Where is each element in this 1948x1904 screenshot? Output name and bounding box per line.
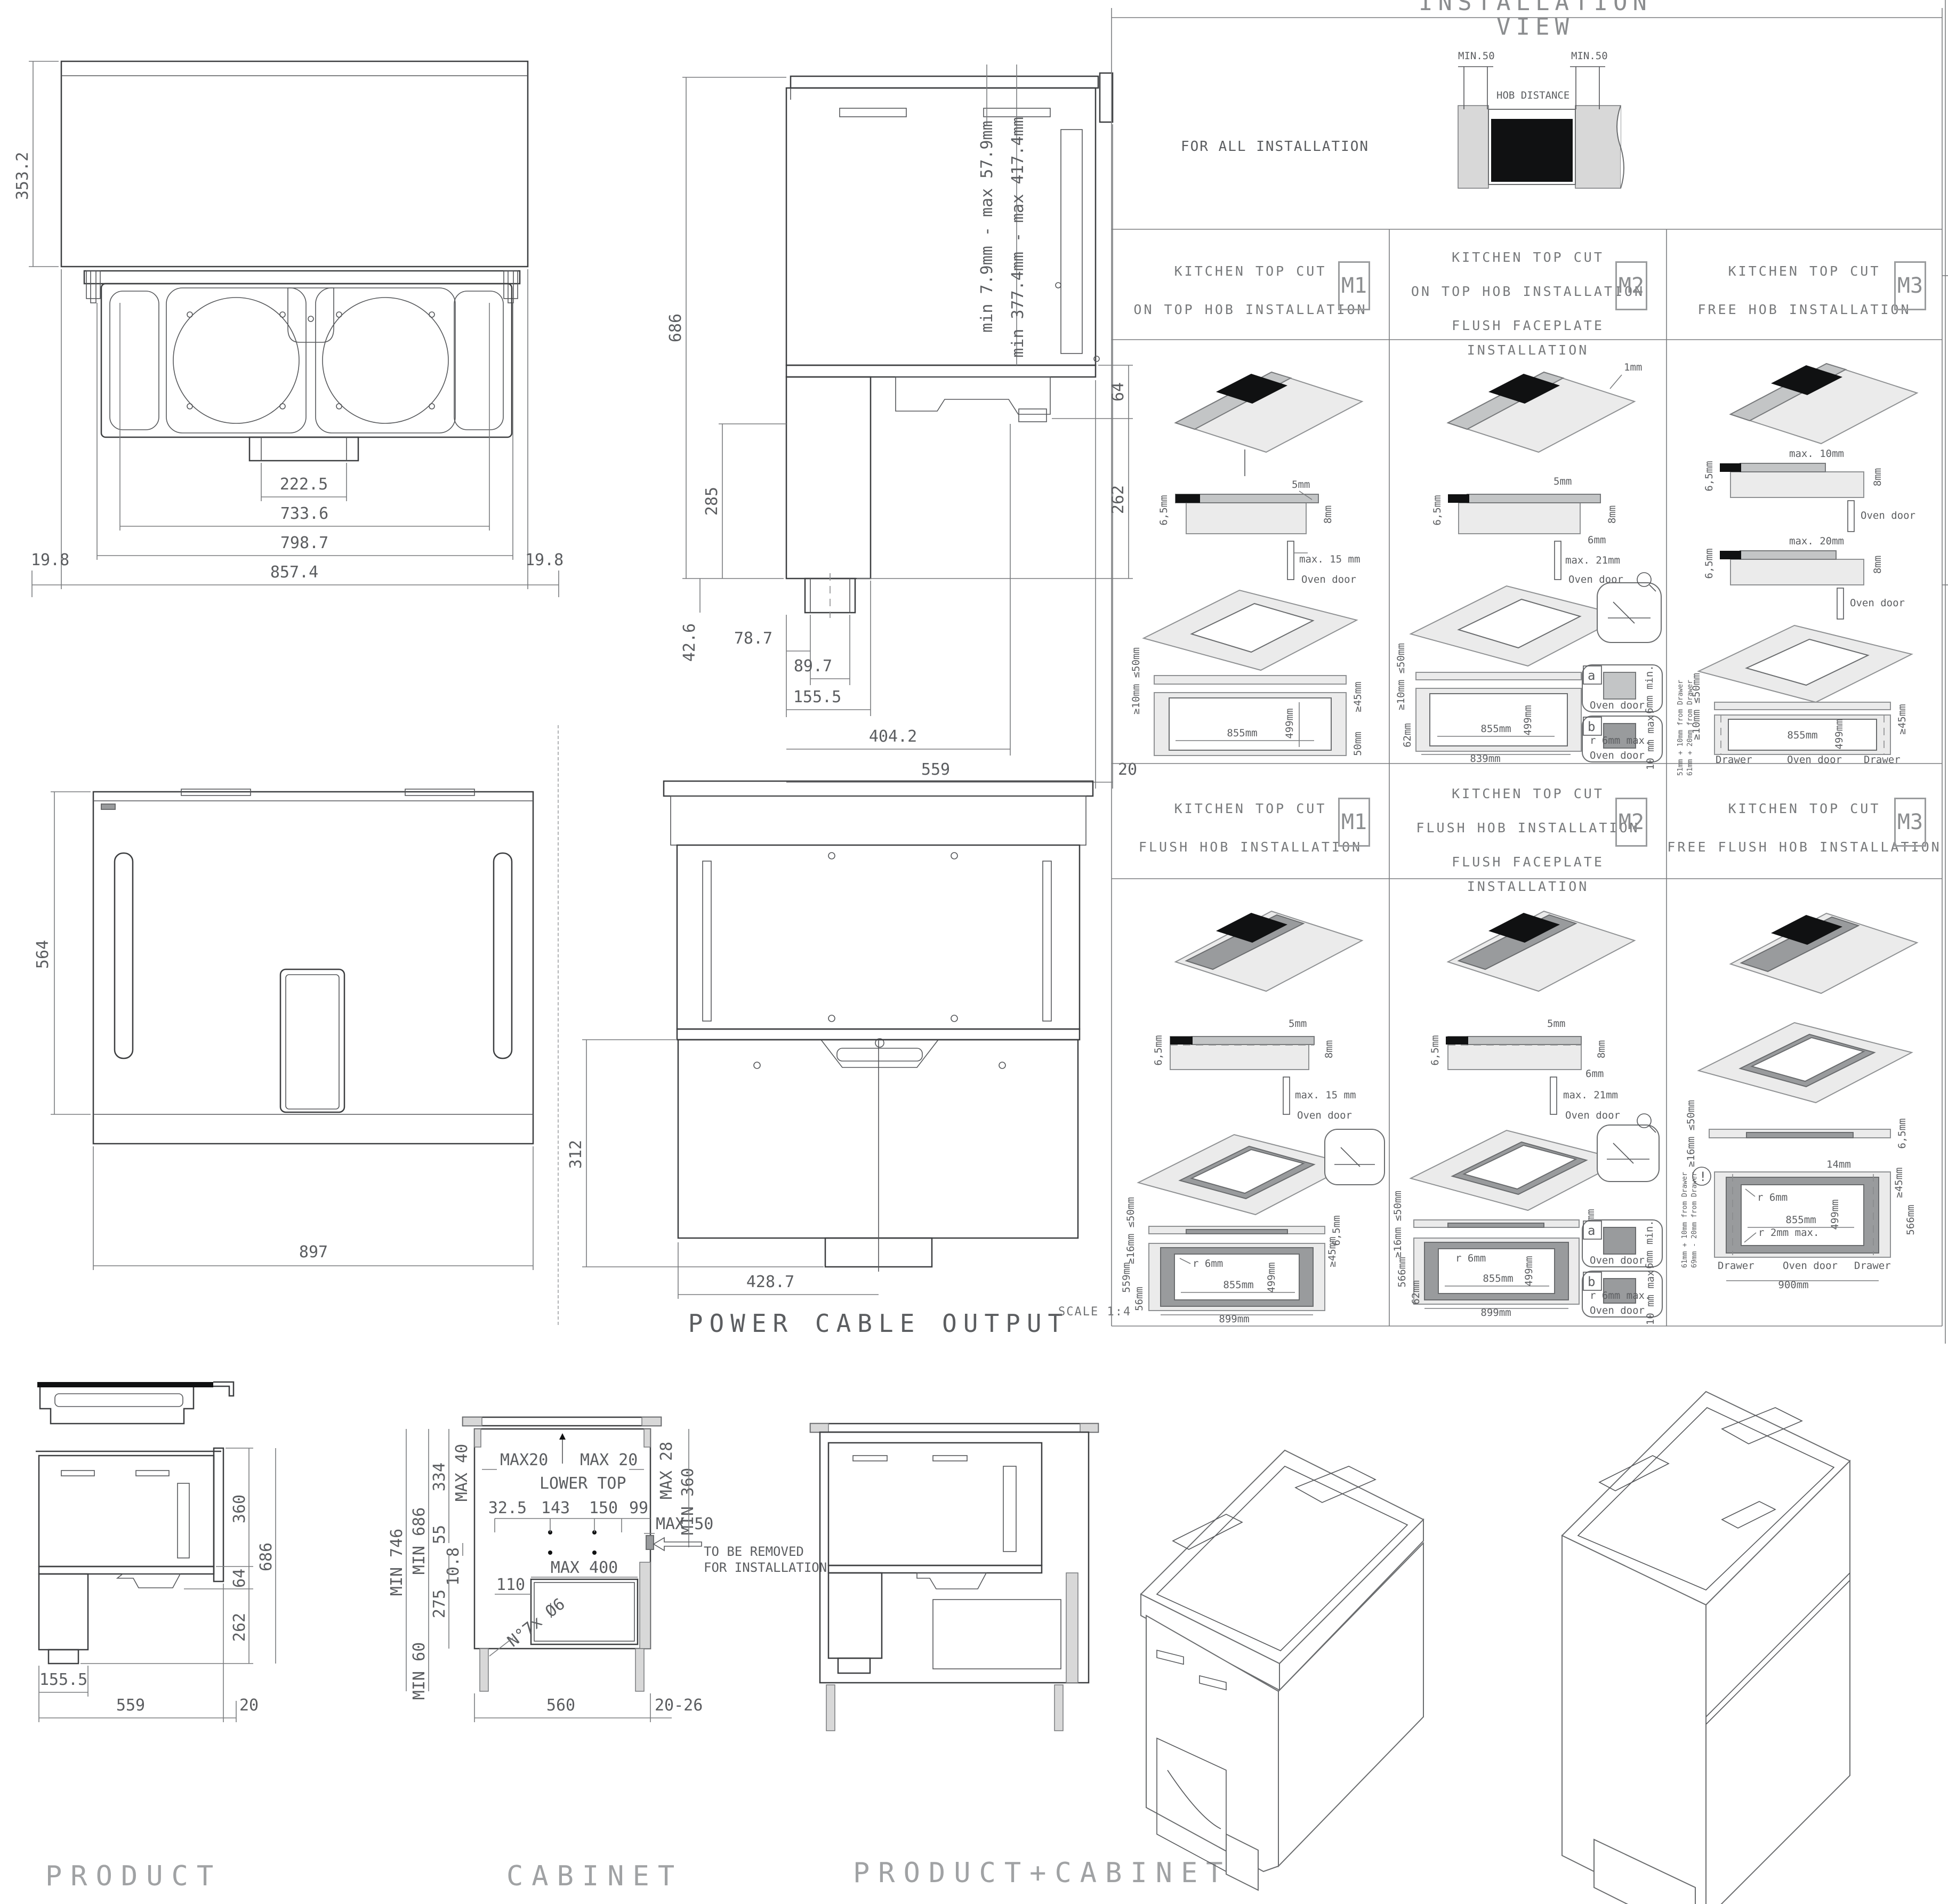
r2m2-plan-w: 855mm [1483,1273,1513,1284]
r1m2-callout-a: a 6mm min. Oven door [1582,665,1662,714]
r1m3-cs2-top: max. 20mm [1789,535,1844,547]
r2m3-warning: ! [1699,1169,1706,1184]
dim-product-lower: 262 [230,1613,249,1642]
dim-cab-min746: MIN 746 [388,1529,406,1596]
r2m2-cs-doorgap: max. 21mm [1563,1089,1618,1101]
r2m2-plan-rad: r 6mm [1455,1252,1486,1264]
r1m3-plan-n2: 61mm + 20mm from Drawer [1686,680,1694,776]
r2m1-iso-cutout [1138,1129,1384,1215]
iso-product-cabinet [1546,1344,1948,1903]
dim-cab-max400: MAX 400 [551,1558,618,1577]
dim-cab-108: 10.8 [444,1547,463,1586]
r1m3-cs2-door: Oven door [1850,597,1905,609]
r1m2-callout-a2: Oven door [1590,700,1645,711]
r1m1-plan-h: 499mm [1284,708,1295,738]
r1m2-iso: 1mm [1448,361,1642,452]
r2m2-plan: ≥16mm ≤50mm 6,5mm r 6mm 855mm 499mm ≥45m… [1392,1191,1597,1319]
dim-product-gap: 20 [239,1696,259,1715]
r2m2-callout-a-tag: a [1588,1223,1595,1238]
r2m3-plan: ! r 6mm r 2mm max. 855mm 499mm 14mm ≥45m… [1681,1159,1917,1291]
dim-cab-min686: MIN 686 [410,1507,429,1574]
r1m1-cs-door: Oven door [1301,574,1356,585]
r1m3-cross-section-2: 6,5mm max. 20mm 8mm Oven door [1703,535,1905,619]
r1m2-plan-h: 499mm [1522,705,1534,735]
r1m1-cross-section: 6,5mm 8mm 5mm max. 15 mm Oven door [1158,479,1360,585]
product-view: 360 64 262 686 155.5 559 20 PRODUCT [8,1349,291,1904]
r1m1-plan-w: 855mm [1227,727,1257,739]
r1m3-drawer-1: Drawer [1716,754,1752,766]
r2m2-plan-left: 62mm [1410,1280,1422,1305]
r1m2-callout-b1: r 6mm max. [1590,735,1651,746]
r2m1-code: M1 [1338,798,1370,847]
r1m2-plan-left: 62mm [1402,723,1413,748]
r1m1-cs-doorgap: max. 15 mm [1299,553,1360,565]
r2m2-callout-b3: Oven door [1590,1305,1645,1316]
r2m1-plan: ≥16mm ≤50mm 6,5mm r 6mm 855mm 499mm ≥45m… [1121,1197,1342,1325]
r1m1-iso-cutout [1144,590,1357,670]
r1m2-cs-bottom: 6mm [1588,534,1606,546]
r2m2-plan-h: 499mm [1523,1256,1535,1286]
cell-r1m1: 6,5mm 8mm 5mm max. 15 mm Oven door ≥10mm… [1112,340,1389,764]
r2m1-plan-thick: ≥16mm ≤50mm [1125,1197,1137,1264]
dim-cab-min60: MIN 60 [410,1642,429,1700]
r2m3-plan-gap: 14mm [1826,1159,1851,1170]
iso-cabinet-drawing [1562,1392,1850,1904]
header-r2m3: KITCHEN TOP CUT FREE FLUSH HOB INSTALLAT… [1667,764,1942,879]
r2m2-callout-a2: Oven door [1590,1255,1645,1266]
r1m1-iso [1176,372,1362,476]
dim-cab-max20r: MAX 20 [580,1451,638,1469]
r1m3-cs1-left: 6,5mm [1703,461,1715,491]
r1m3-plan-m: ≥45mm [1896,704,1908,734]
dim-cab-334: 334 [430,1463,449,1491]
dim-product-hinge: 64 [230,1569,249,1588]
dim-cab-2026: 20-26 [655,1696,703,1715]
dim-cab-110: 110 [496,1576,525,1594]
r1m3-cs1-right: 8mm [1872,468,1883,486]
r2m2-cs-right: 8mm [1596,1040,1607,1058]
r2m1-iso [1176,911,1362,991]
r1m3-cs1-top: max. 10mm [1789,448,1844,460]
r1m2-callout-b3: Oven door [1590,750,1645,761]
r1m1-plan-m: ≥45mm [1352,681,1364,712]
product-dimensions: 360 64 262 686 155.5 559 20 [39,1448,276,1722]
r2m1-plan-rad: r 6mm [1193,1258,1223,1270]
dim-cab-c1: 32.5 [488,1499,527,1517]
iso-product-drawing [1141,1450,1423,1890]
r2m1-plan-side: 559mm [1121,1262,1132,1292]
r1m2-callout-b2: 10 mm max. [1645,709,1656,770]
header-r1m2: KITCHEN TOP CUT ON TOP HOB INSTALLATION … [1389,229,1667,340]
r1m2-cs-right: 8mm [1606,505,1618,524]
r2m3-profile: ≥16mm ≤50mm 6,5mm [1685,1100,1908,1167]
r1m2-cross-section: 6,5mm 5mm 8mm 6mm max. 21mm Oven door [1431,476,1623,585]
r2m3-plan-side: 566mm [1905,1204,1917,1235]
dim-cab-55: 55 [430,1525,449,1544]
header-r1m1: KITCHEN TOP CUT ON TOP HOB INSTALLATION … [1112,229,1389,340]
installation-panel: FOR ALL INSTALLATION MIN.50 MIN.50 HOB D… [1112,18,1942,229]
cabinet-title: CABINET [506,1860,683,1892]
r2m3-ovendoor: Oven door [1783,1260,1838,1272]
r2m1-plan-w: 855mm [1223,1279,1253,1291]
r2m3-plan-w: 855mm [1785,1214,1816,1226]
r1m2-cs-top: 5mm [1553,476,1572,487]
r2m1-cs-left: 6,5mm [1153,1035,1164,1065]
r2m3-iso-cutout [1699,1023,1912,1103]
r2m3-plan-rad2: r 2mm max. [1758,1227,1819,1239]
r1m3-ovendoor: Oven door [1787,754,1842,766]
dim-cab-560: 560 [546,1696,575,1715]
r2m2-iso [1448,911,1635,991]
r1m1-code: M1 [1338,261,1370,310]
r2m1-cs-door: Oven door [1297,1110,1352,1121]
r1m3-cs1-door: Oven door [1861,510,1915,521]
header-r1m3: KITCHEN TOP CUT FREE HOB INSTALLATION M3 [1667,229,1942,340]
r2m2-callout-b-tag: b [1588,1274,1595,1289]
min50-left: MIN.50 [1458,50,1495,62]
r1m1-cs-gap: 5mm [1292,479,1310,491]
r1m2-callout-b: b r 6mm max. 10 mm max. Oven door [1582,709,1662,770]
r2m1-cs-gap: 5mm [1289,1018,1307,1030]
header-r2m1: KITCHEN TOP CUT FLUSH HOB INSTALLATION M… [1112,764,1389,879]
drawing-sheet: 353.2 222.5 733.6 798.7 857.4 19.8 19.8 [0,0,1948,1904]
dim-cab-c4: 99 [629,1499,648,1517]
r2m2-plan-side: 566mm [1396,1257,1408,1287]
product-title: PRODUCT [45,1860,222,1892]
r2m2-callout-a1: 6mm min. [1644,1220,1655,1269]
dim-cab-max20l: MAX20 [500,1451,548,1469]
r1m2-callout-b-tag: b [1588,719,1595,734]
r1m3-plan-h: 499mm [1833,719,1845,749]
header-r2m2: KITCHEN TOP CUT FLUSH HOB INSTALLATION F… [1389,764,1667,879]
r2m3-drawer-1: Drawer [1718,1260,1754,1272]
r1m3-iso-cutout [1699,625,1912,702]
r2m2-cross-section: 6,5mm 5mm 8mm 6mm max. 21mm Oven door [1429,1018,1620,1121]
hob-distance-diagram: MIN.50 MIN.50 HOB DISTANCE [1458,50,1624,188]
r2m2-cs-left: 6,5mm [1429,1035,1441,1065]
r2m1-plan-h: 499mm [1266,1262,1277,1292]
r2m1-cs-right: 8mm [1323,1040,1335,1058]
r1m2-cs-doorgap: max. 21mm [1565,555,1620,566]
r2m1-cs-doorgap: max. 15 mm [1295,1089,1356,1101]
cell-r1m2: 1mm 6,5mm 5mm 8mm 6mm max. 21mm Oven doo… [1389,340,1667,764]
r2m2-cs-bottom: 6mm [1585,1068,1604,1080]
dim-product-upper: 360 [230,1495,249,1523]
r2m2-callout-b2: 10 mm max. [1645,1264,1656,1325]
pcab-drawing [810,1424,1098,1731]
product-drawing [36,1448,223,1664]
product-mini-profile [37,1382,234,1424]
dim-product-duct: 155.5 [39,1670,87,1689]
r1m2-iso-note: 1mm [1624,361,1642,373]
cell-r2m2: 6,5mm 5mm 8mm 6mm max. 21mm Oven door ≥1… [1389,879,1667,1326]
r2m3-plan-m: ≥45mm [1893,1167,1905,1198]
hob-distance-label: HOB DISTANCE [1496,90,1569,101]
r2m3-plan-rad: r 6mm [1757,1192,1788,1203]
cell-r2m3: ≥16mm ≤50mm 6,5mm ! r 6mm r 2mm max. 855… [1667,879,1942,1326]
r1m1-plan-b: 50mm [1352,732,1364,756]
r1m3-code: M3 [1894,261,1926,310]
r1m3-plan-w: 855mm [1787,729,1817,741]
r2m3-plan-h: 499mm [1829,1199,1841,1230]
r1m2-plan: ≥10mm ≤50mm 855mm 499mm ≥45mm 62mm 839mm [1395,643,1593,765]
r2m3-iso [1730,913,1917,993]
r1m3-iso [1730,364,1917,444]
cell-r1m3: 6,5mm max. 10mm 8mm Oven door 6,5mm max.… [1667,340,1942,764]
cabinet-view: MIN 746 MIN 686 334 MAX 40 55 10.8 275 M… [373,1349,789,1904]
r1m3-cs2-right: 8mm [1872,556,1883,574]
min50-right: MIN.50 [1571,50,1608,62]
r2m3-drawer-2: Drawer [1854,1260,1891,1272]
r2m1-plan-m: ≥45mm [1326,1236,1338,1267]
dim-cab-max50: MAX 50 [656,1515,713,1533]
r1m2-plan-thick: ≥10mm ≤50mm [1395,643,1407,710]
r1m2-callout-a1: 6mm min. [1644,665,1655,714]
cell-r2m1: 6,5mm 8mm 5mm max. 15 mm Oven door ≥16mm… [1112,879,1389,1326]
r2m2-cs-door: Oven door [1565,1110,1620,1121]
r2m3-plan-n1: 61mm + 10mm from Drawer [1681,1172,1689,1268]
r1m2-plan-w: 855mm [1480,723,1511,735]
dim-product-height: 686 [257,1543,276,1571]
r1m3-cross-section-1: 6,5mm max. 10mm 8mm Oven door [1703,448,1915,532]
r1m2-iso-cutout [1411,573,1661,666]
r2m2-callout-b1: r 6mm max. [1590,1290,1651,1302]
r1m1-plan-thick: ≥10mm ≤50mm [1130,647,1142,714]
dim-cab-275: 275 [430,1589,449,1618]
r1m3-drawer-2: Drawer [1864,754,1901,766]
r1m3-plan-n1: 51mm + 10mm from Drawer [1677,680,1685,776]
r2m3-plan-n2: 69mm - 20mm from Drawer [1691,1172,1699,1268]
cab-drill-note: N°7x Ø6 [504,1595,568,1651]
r2m3-plan-thick: ≥16mm ≤50mm [1685,1100,1697,1167]
for-all-installation: FOR ALL INSTALLATION [1181,139,1369,155]
cabinet-dimensions: MIN 746 MIN 686 334 MAX 40 55 10.8 275 M… [388,1429,827,1722]
r2m1-plan-side2: 56mm [1133,1287,1145,1311]
dim-cab-max28: MAX 28 [657,1442,676,1499]
dim-product-depth: 559 [116,1696,145,1715]
r1m1-cs-left: 6,5mm [1158,495,1170,525]
product-cabinet-view: PRODUCT+CABINET [789,1349,1141,1904]
r1m2-callout-a-tag: a [1588,668,1595,683]
cab-lower-top: LOWER TOP [540,1474,626,1493]
r2m2-plan-thick: ≥16mm ≤50mm [1392,1191,1404,1258]
r2m2-iso-cutout [1411,1114,1659,1210]
iso-product [1125,1365,1498,1877]
r1m1-cs-right: 8mm [1322,505,1334,524]
dim-cab-c3: 150 [589,1499,618,1517]
r1m3-cs2-left: 6,5mm [1703,548,1715,579]
dim-cab-max40: MAX 40 [453,1444,471,1501]
r2m2-callout-b: b r 6mm max. 10 mm max. Oven door [1582,1264,1662,1325]
dim-cab-c2: 143 [541,1499,570,1517]
r1m2-cs-left: 6,5mm [1431,495,1443,525]
r2m2-code: M2 [1615,798,1647,847]
r2m3-plan-right: 6,5mm [1896,1118,1908,1148]
r2m2-cs-top: 5mm [1547,1018,1565,1030]
r2m2-callout-a: a 6mm min. Oven door [1582,1220,1662,1269]
r2m1-cross-section: 6,5mm 8mm 5mm max. 15 mm Oven door [1153,1018,1356,1121]
r2m3-code: M3 [1894,798,1926,847]
r1m2-code: M2 [1615,261,1647,310]
